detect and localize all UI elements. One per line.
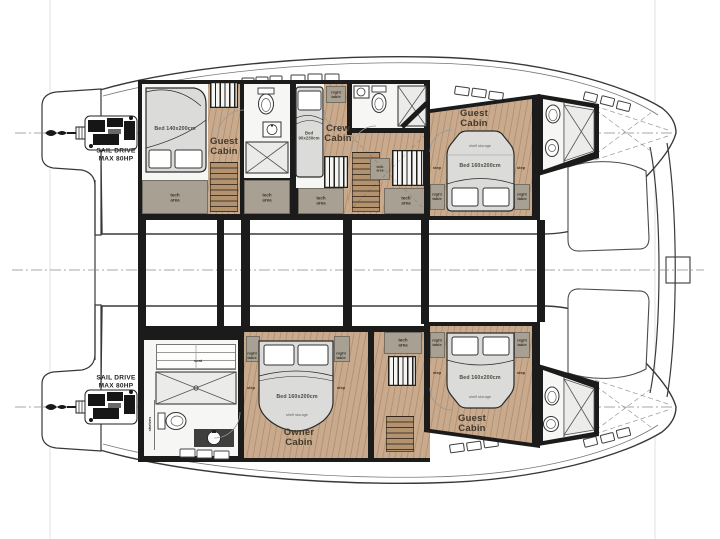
wardrobe-hatch-aft-guest (210, 82, 238, 108)
tech-area-4 (384, 188, 428, 214)
tech-area-small (370, 158, 390, 180)
engine-icon-starboard (45, 390, 137, 424)
bathroom-mid-wall-bottom (347, 128, 430, 133)
forward-crossbeam-outer (667, 143, 675, 397)
bathroom-aft-port-floor (244, 84, 290, 178)
tech-area-3 (298, 188, 344, 214)
owner-bathroom-seat (156, 344, 236, 370)
tech-area-2 (244, 180, 290, 214)
guest-cabin-aft-floor (142, 84, 208, 180)
wardrobe-hatch-starboard (388, 356, 416, 386)
companionway-stairs-starboard (386, 416, 414, 452)
catamaran-layout-plan: SAIL DRIVEMAX 80HP SAIL DRIVEMAX 80HP Gu… (0, 0, 720, 539)
owner-bathroom-shelves (144, 400, 155, 450)
bathroom-mid-port-floor (352, 84, 424, 128)
tech-area-1 (142, 180, 208, 214)
forward-crossbeam-inner (650, 147, 659, 393)
label-sail-drive-port: SAIL DRIVEMAX 80HP (96, 147, 135, 163)
night-table-fore-starboard-left (430, 332, 445, 358)
label-sail-drive-starboard: SAIL DRIVEMAX 80HP (96, 374, 135, 390)
night-table-fore-port-left (430, 184, 445, 210)
port-stern-platform (42, 89, 101, 235)
starboard-stern-platform (42, 305, 101, 451)
bridgedeck-bulkheads (138, 218, 545, 328)
night-table-fore-starboard-right (514, 332, 530, 358)
night-table-owner-right (334, 336, 350, 362)
tech-area-5 (384, 332, 422, 354)
crew-cabin-floor (296, 84, 324, 188)
companionway-stairs-aft-guest (210, 162, 238, 212)
trampoline-starboard (568, 289, 649, 378)
trampoline-port (568, 162, 649, 251)
night-table-crew (326, 86, 346, 103)
night-table-owner-left (246, 336, 260, 362)
bowsprit (666, 257, 690, 283)
engine-icon-port (45, 116, 137, 150)
bathroom-fore-port (538, 94, 599, 176)
bathroom-fore-starboard (538, 364, 599, 446)
bow-locker-lines (595, 106, 668, 434)
wardrobe-hatch-fore-port (392, 150, 424, 186)
night-table-fore-port-right (514, 184, 530, 210)
wardrobe-hatch-crew (324, 156, 348, 188)
